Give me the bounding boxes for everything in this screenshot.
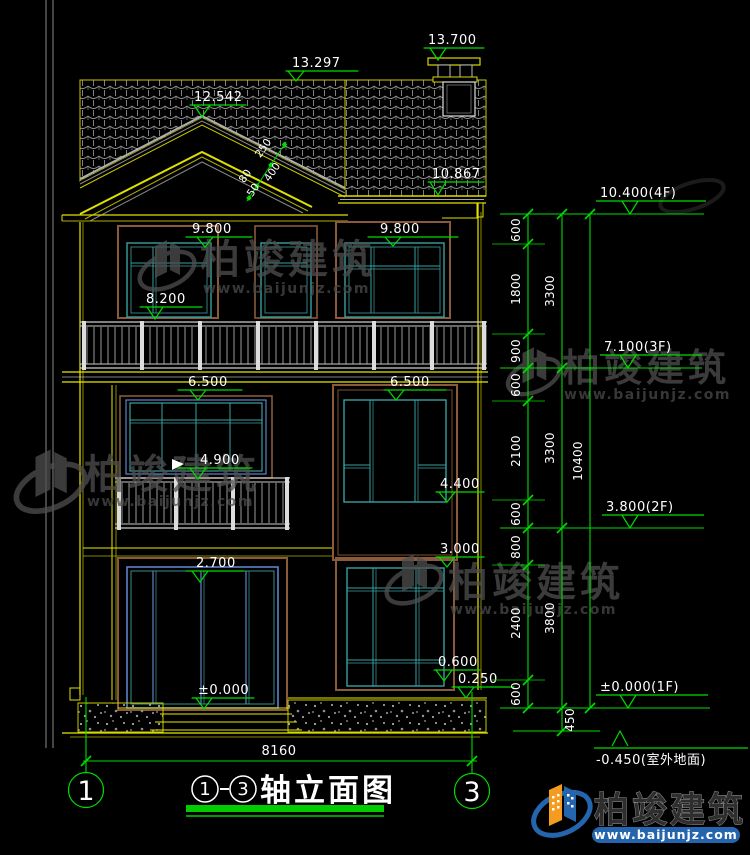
svg-text:12.542: 12.542 (194, 90, 243, 105)
svg-text:6.500: 6.500 (390, 375, 430, 390)
roof (62, 58, 486, 221)
marker-f2-right-sill: 4.400 (436, 477, 484, 502)
svg-text:6.500: 6.500 (188, 375, 228, 390)
svg-text:-0.450(室外地面): -0.450(室外地面) (596, 752, 706, 768)
marker-ridge: 13.297 (286, 56, 358, 81)
building-elevation (62, 58, 488, 737)
group-total: 3300 (543, 275, 557, 307)
level-1f: ±0.000(1F) (596, 680, 708, 708)
footer-brand-text: 柏竣建筑 (594, 790, 746, 831)
chain-dim: 600 (509, 502, 523, 526)
chain-dim: 600 (509, 682, 523, 706)
cad-elevation-sheet: 柏竣建筑 www.baijunjz.com 柏竣建筑 www.baijunjz.… (0, 0, 750, 855)
watermark-top: 柏竣建筑 www.baijunjz.com (134, 237, 376, 297)
title-text: 轴立面图 (260, 773, 396, 809)
watermark-url-text: www.baijunjz.com (564, 387, 731, 403)
chain-dim: 800 (509, 535, 523, 559)
svg-text:3.000: 3.000 (440, 542, 480, 557)
watermark-url-text: www.baijunjz.com (87, 494, 254, 510)
marker-chimney-top: 13.700 (424, 33, 484, 60)
f2-window-right (333, 385, 457, 560)
svg-text:1: 1 (77, 776, 94, 807)
level-outdoor-ground: -0.450(室外地面) (594, 731, 748, 768)
watermark-brand-text: 柏竣建筑 (448, 560, 624, 606)
svg-text:2.700: 2.700 (196, 556, 236, 571)
watermark-bottom-right: 柏竣建筑 www.baijunjz.com (381, 554, 624, 618)
title-axis-start: 1 (199, 779, 210, 800)
brand-logo-icon (527, 784, 598, 844)
right-dimension-chain: 600 1800 900 600 2100 600 800 2400 600 3… (492, 186, 748, 768)
title-underline-thick (186, 805, 384, 812)
drawing-title: 1 3 轴立面图 (186, 773, 396, 816)
title-axis-end: 3 (237, 779, 248, 800)
svg-text:±0.000: ±0.000 (198, 683, 249, 698)
axis-bubble-1: 1 (69, 773, 104, 808)
footer-brand: 柏竣建筑 www.baijunjz.com (527, 784, 746, 844)
svg-text:0.250: 0.250 (458, 672, 498, 687)
chain-dim: 1800 (509, 273, 523, 305)
marker-door-head: 2.700 (186, 556, 244, 582)
chain-dim: 600 (509, 373, 523, 397)
chain-dim: 600 (509, 218, 523, 242)
svg-text:0.600: 0.600 (438, 655, 478, 670)
sheet-border-lines (46, 0, 53, 748)
marker-f3-sill: 8.200 (140, 292, 202, 319)
watermark-url-text: www.baijunjz.com (450, 602, 617, 618)
overall-height-dim: 10400 (571, 441, 585, 481)
marker-f1-plinth: 0.250 (452, 672, 514, 698)
svg-text:4.900: 4.900 (200, 453, 240, 468)
chain-dim: 2400 (509, 607, 523, 639)
group-total: 3300 (543, 432, 557, 464)
watermark-url-text: www.baijunjz.com (203, 281, 370, 297)
chain-dim: 900 (509, 339, 523, 363)
svg-text:4.400: 4.400 (440, 477, 480, 492)
overall-width-dim: 8160 (261, 744, 296, 759)
f3-balcony-railing (80, 321, 487, 370)
chain-dim: 2100 (509, 435, 523, 467)
svg-text:10.400(4F): 10.400(4F) (600, 186, 676, 201)
right-eave-fascia (338, 196, 486, 218)
marker-f1-floor: ±0.000 (192, 683, 254, 709)
svg-text:9.800: 9.800 (192, 222, 232, 237)
svg-text:13.700: 13.700 (428, 33, 477, 48)
ground-drop-dim: 450 (563, 708, 577, 732)
marker-f2-head-right: 6.500 (384, 375, 446, 400)
svg-text:13.297: 13.297 (292, 56, 341, 71)
watermark-brand-text: 柏竣建筑 (200, 237, 376, 283)
svg-text:10.867: 10.867 (432, 167, 481, 182)
footer-url-text: www.baijunjz.com (594, 827, 738, 842)
svg-text:7.100(3F): 7.100(3F) (604, 340, 672, 355)
axis-bubble-3: 3 (455, 774, 490, 809)
svg-text:8.200: 8.200 (146, 292, 186, 307)
svg-text:±0.000(1F): ±0.000(1F) (600, 680, 679, 695)
group-total: 3800 (543, 602, 557, 634)
level-2f: 3.800(2F) (602, 500, 704, 528)
svg-text:9.800: 9.800 (380, 222, 420, 237)
svg-text:3.800(2F): 3.800(2F) (606, 500, 674, 515)
svg-text:3: 3 (463, 777, 480, 808)
elevation-drawing: 柏竣建筑 www.baijunjz.com 柏竣建筑 www.baijunjz.… (0, 0, 750, 855)
